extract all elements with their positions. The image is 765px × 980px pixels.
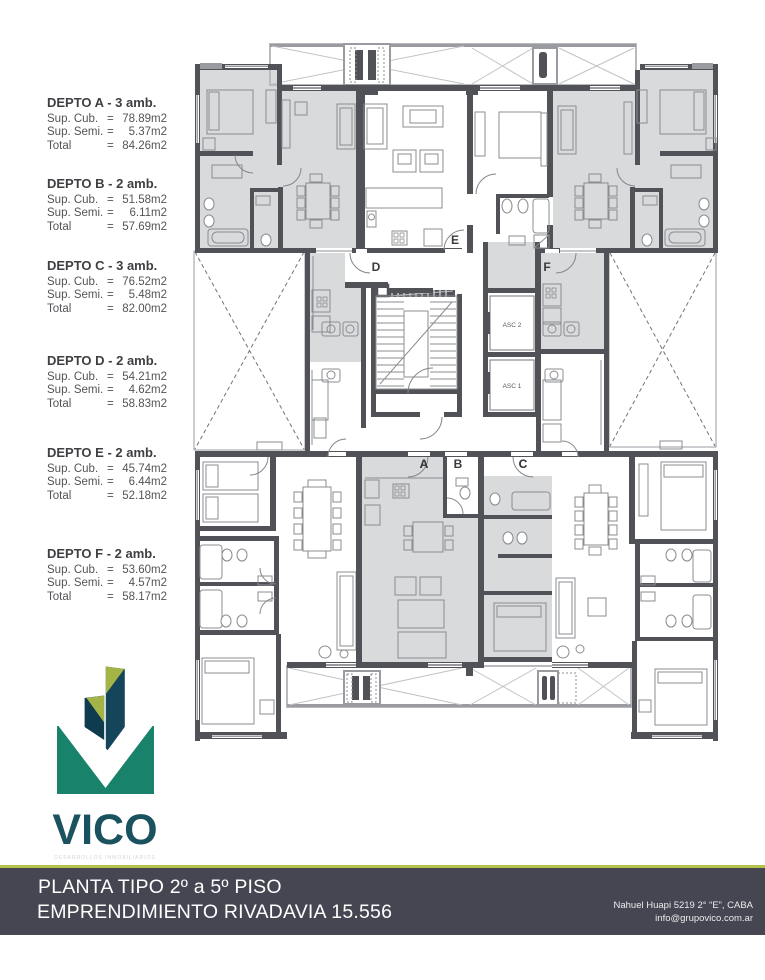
svg-text:E: E	[451, 233, 459, 247]
svg-text:F: F	[543, 260, 550, 274]
svg-text:B: B	[454, 457, 463, 471]
svg-text:ASC 1: ASC 1	[503, 383, 522, 390]
svg-text:A: A	[420, 457, 429, 471]
svg-text:C: C	[519, 457, 528, 471]
svg-text:ASC 2: ASC 2	[503, 322, 522, 329]
svg-text:D: D	[372, 260, 381, 274]
